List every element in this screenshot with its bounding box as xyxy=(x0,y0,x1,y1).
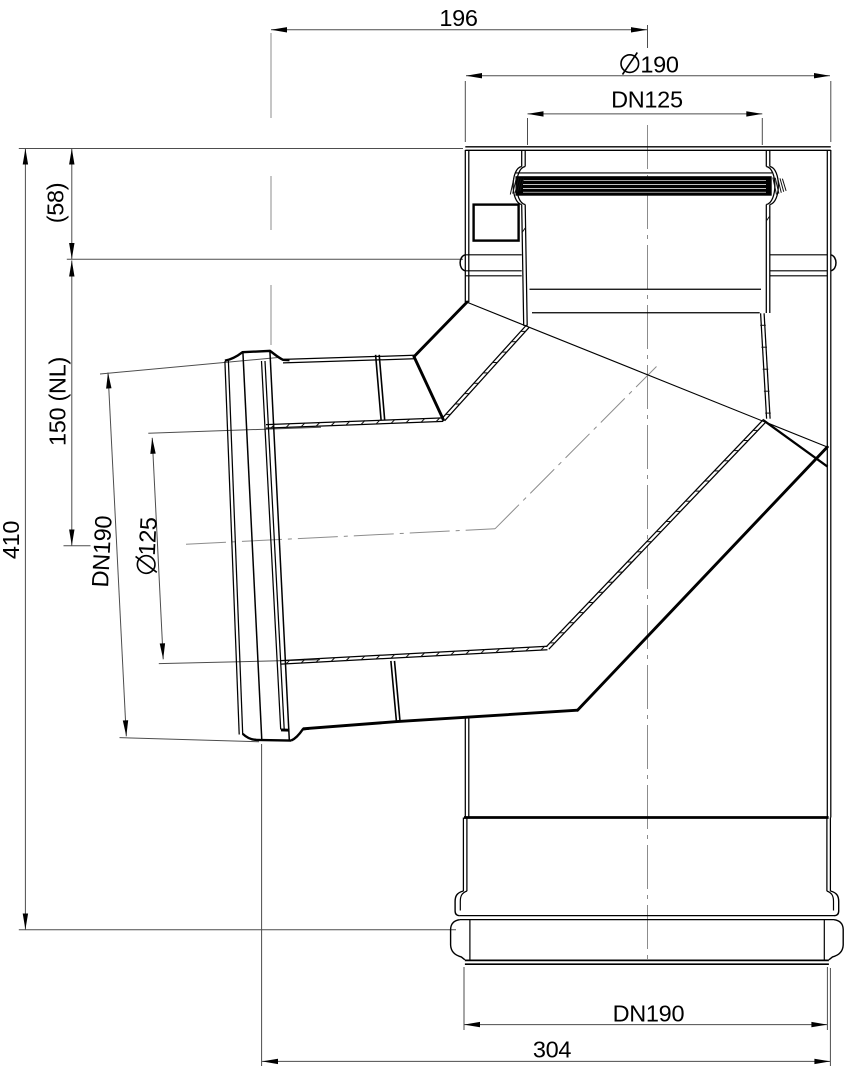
svg-text:DN190: DN190 xyxy=(613,1001,685,1027)
svg-text:125: 125 xyxy=(134,517,162,557)
svg-text:410: 410 xyxy=(0,521,24,560)
svg-text:304: 304 xyxy=(533,1036,572,1062)
svg-text:DN190: DN190 xyxy=(87,515,117,588)
svg-text:150 (NL): 150 (NL) xyxy=(45,357,71,446)
svg-text:196: 196 xyxy=(439,5,478,31)
svg-text:(58): (58) xyxy=(43,183,69,224)
svg-text:190: 190 xyxy=(640,51,679,77)
svg-text:DN125: DN125 xyxy=(611,87,683,113)
